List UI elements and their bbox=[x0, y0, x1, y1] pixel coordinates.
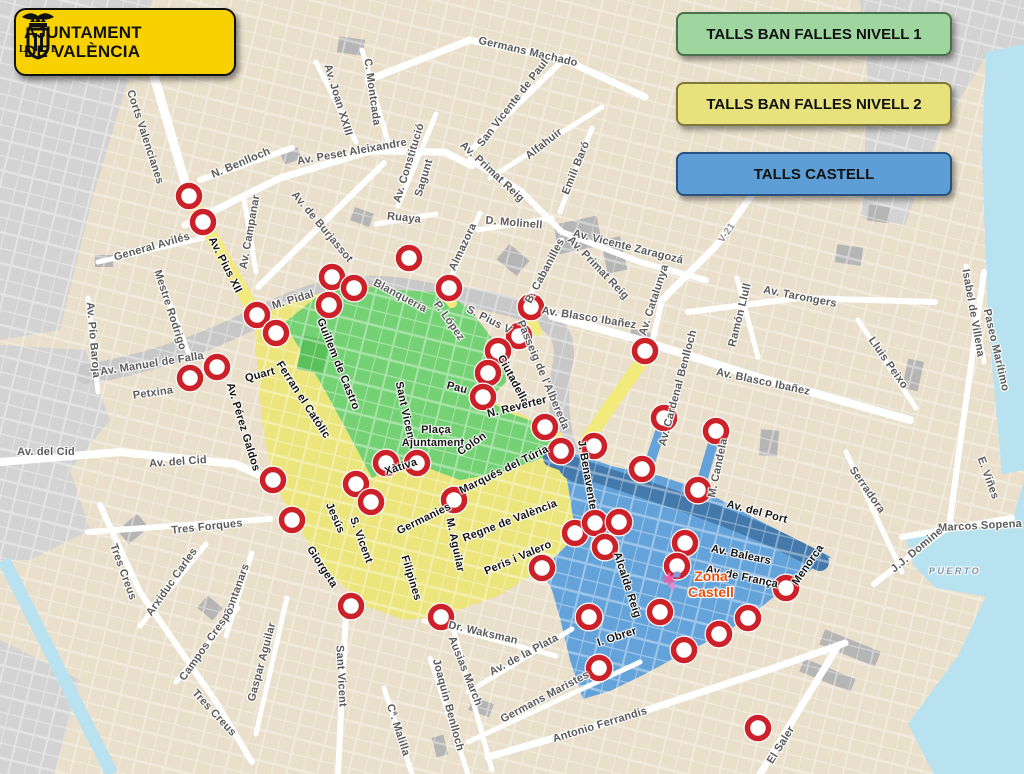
closure-marker bbox=[337, 592, 366, 621]
closure-marker bbox=[585, 654, 614, 683]
closure-marker bbox=[176, 364, 205, 393]
closure-marker bbox=[315, 291, 344, 320]
closure-marker bbox=[605, 508, 634, 537]
closure-marker bbox=[631, 337, 660, 366]
closure-marker bbox=[340, 274, 369, 303]
closure-marker bbox=[575, 603, 604, 632]
closure-marker bbox=[278, 506, 307, 535]
map-stage: Germans MachadoC. MontcadaAv. Joan XXIII… bbox=[0, 0, 1024, 774]
legend-item-2: TALLS CASTELL bbox=[676, 152, 952, 196]
closure-marker bbox=[517, 293, 546, 322]
legend-item-label: TALLS BAN FALLES NIVELL 1 bbox=[706, 26, 921, 43]
closure-marker bbox=[528, 554, 557, 583]
closure-marker bbox=[705, 620, 734, 649]
closure-marker bbox=[395, 244, 424, 273]
closure-marker bbox=[650, 404, 679, 433]
closure-marker bbox=[547, 437, 576, 466]
closure-marker bbox=[670, 636, 699, 665]
legend-item-0: TALLS BAN FALLES NIVELL 1 bbox=[676, 12, 952, 56]
closure-marker bbox=[372, 449, 401, 478]
closure-marker bbox=[772, 574, 801, 603]
legend-item-label: TALLS CASTELL bbox=[754, 166, 875, 183]
closure-marker bbox=[702, 417, 731, 446]
legend: TALLS BAN FALLES NIVELL 1TALLS BAN FALLE… bbox=[676, 12, 952, 222]
closure-marker bbox=[628, 455, 657, 484]
closure-marker bbox=[440, 486, 469, 515]
closure-marker bbox=[262, 319, 291, 348]
svg-text:L: L bbox=[51, 44, 58, 55]
legend-item-label: TALLS BAN FALLES NIVELL 2 bbox=[706, 96, 921, 113]
closure-marker bbox=[427, 603, 456, 632]
closure-marker bbox=[531, 413, 560, 442]
closure-marker bbox=[175, 182, 204, 211]
closure-marker bbox=[591, 533, 620, 562]
closure-marker bbox=[580, 432, 609, 461]
closure-marker bbox=[684, 476, 713, 505]
valencia-coat-of-arms: L L bbox=[16, 10, 60, 62]
svg-text:L: L bbox=[19, 44, 26, 55]
closure-marker bbox=[403, 449, 432, 478]
closure-marker bbox=[259, 466, 288, 495]
legend-item-1: TALLS BAN FALLES NIVELL 2 bbox=[676, 82, 952, 126]
closure-marker bbox=[646, 598, 675, 627]
closure-marker bbox=[663, 552, 692, 581]
closure-marker bbox=[744, 714, 773, 743]
closure-marker bbox=[474, 359, 503, 388]
closure-marker bbox=[469, 383, 498, 412]
ajuntament-badge: L L AJUNTAMENT DE VALÈNCIA bbox=[14, 8, 236, 76]
closure-marker bbox=[189, 208, 218, 237]
closure-marker bbox=[203, 353, 232, 382]
closure-marker bbox=[435, 274, 464, 303]
closure-marker bbox=[357, 488, 386, 517]
closure-marker bbox=[734, 604, 763, 633]
